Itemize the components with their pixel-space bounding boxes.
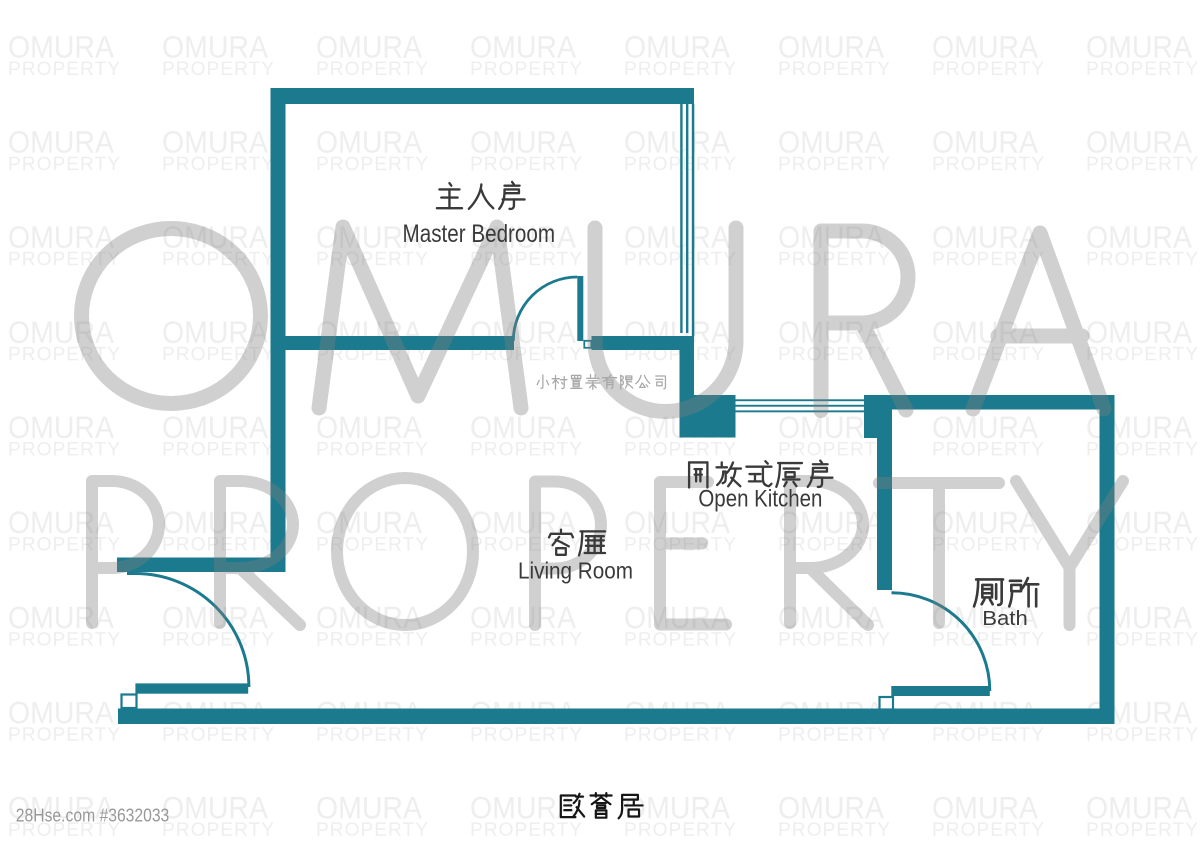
svg-text:Master Bedroom: Master Bedroom (403, 220, 556, 248)
svg-text:Living Room: Living Room (518, 558, 633, 584)
svg-text:Open Kitchen: Open Kitchen (698, 486, 822, 513)
svg-text:Bath: Bath (982, 607, 1028, 630)
svg-text:28Hse.com #3632033: 28Hse.com #3632033 (16, 804, 170, 825)
